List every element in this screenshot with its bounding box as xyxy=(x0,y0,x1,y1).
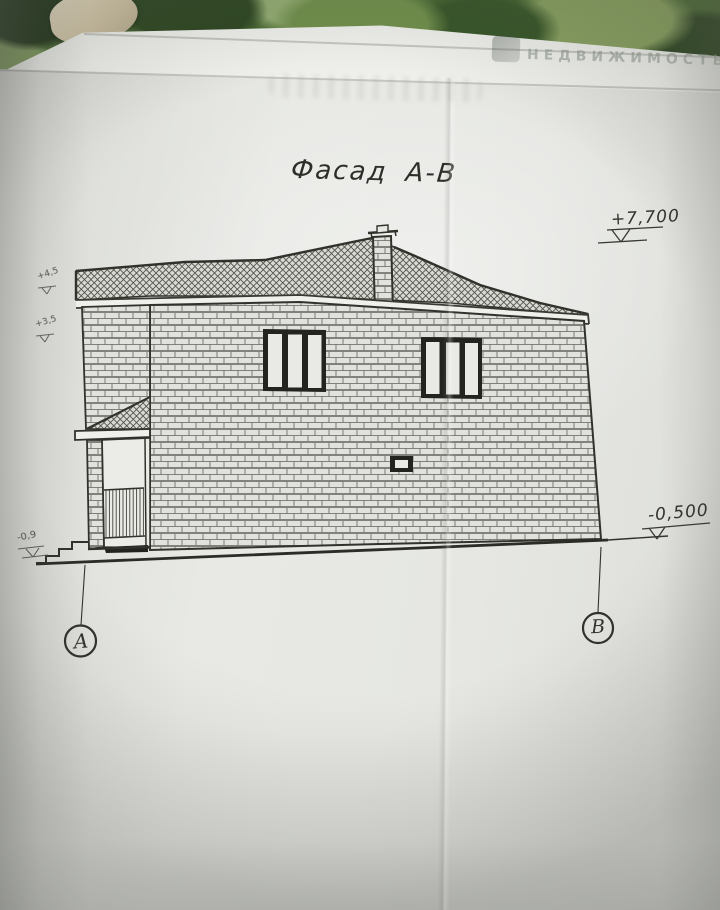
vent-box xyxy=(390,456,413,472)
window-left xyxy=(263,329,326,392)
elevation-arrow-ridge-icon xyxy=(598,227,663,243)
facade-elevation-drawing xyxy=(0,0,720,910)
elevation-arrow-left-upper-icon xyxy=(38,286,56,294)
main-wall xyxy=(149,302,601,550)
elevation-arrow-left-lower-icon xyxy=(36,334,54,342)
porch xyxy=(87,438,150,553)
photo-of-blueprint: НЕДВИЖИМОСТЬ xyxy=(0,0,720,910)
axis-label-b: В xyxy=(583,615,614,638)
elevation-arrow-ground-left-icon xyxy=(18,546,48,558)
drawing-title: Фасад А-В xyxy=(290,155,459,189)
axis-label-a: А xyxy=(65,628,97,654)
entrance-steps xyxy=(36,542,89,563)
elevation-label-ridge: +7,700 xyxy=(611,206,681,230)
